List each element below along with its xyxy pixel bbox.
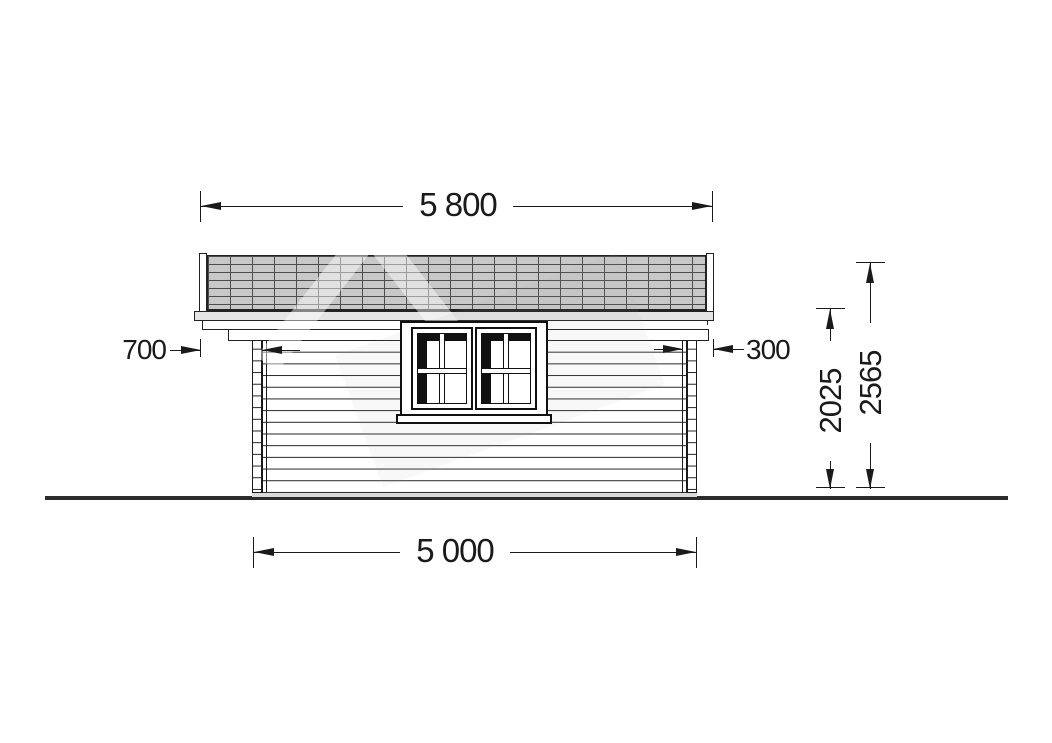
dim-arrow-right-icon — [663, 345, 683, 353]
dim-arrow-left-icon — [254, 548, 274, 556]
window-glazing — [481, 333, 531, 404]
corner-log-ends-right — [687, 331, 697, 493]
extension-tick — [712, 191, 713, 222]
dim-arrow-up-icon — [826, 309, 834, 329]
roof-shingles — [207, 255, 706, 311]
dim-base-width-label: 5 000 — [400, 536, 510, 566]
extension-tick — [856, 487, 885, 488]
dimension-line — [254, 552, 412, 553]
dim-arrow-down-icon — [826, 469, 834, 489]
dim-right-overhang-label: 300 — [746, 337, 812, 363]
dim-arrow-up-icon — [866, 263, 874, 283]
dim-left-overhang-label: 700 — [100, 337, 166, 363]
dim-arrow-down-icon — [866, 469, 874, 489]
dimension-line — [498, 552, 696, 553]
leader-line — [713, 349, 744, 350]
dimension-line — [201, 206, 415, 207]
window-rail-horizontal — [482, 368, 530, 374]
window-glazing — [417, 333, 467, 404]
extension-tick — [200, 339, 201, 357]
window-casement-right — [475, 327, 537, 410]
dim-arrow-left-icon — [262, 346, 282, 354]
extension-tick — [816, 487, 845, 488]
dim-arrow-right-icon — [676, 548, 696, 556]
dim-ridge-height-label: 2565 — [856, 323, 884, 443]
window-sill — [396, 414, 552, 424]
dim-arrow-right-icon — [181, 346, 201, 354]
window-rail-horizontal — [418, 368, 466, 374]
dim-eave-height-label: 2025 — [816, 341, 844, 461]
foundation-strip — [252, 493, 697, 497]
window-casement-left — [411, 327, 473, 410]
wall-corner-line-right — [682, 341, 683, 493]
extension-tick — [696, 537, 697, 568]
corner-log-ends-left — [252, 331, 262, 493]
dim-arrow-right-icon — [692, 202, 712, 210]
barge-board-right — [706, 253, 714, 312]
wall-corner-line-left — [266, 341, 267, 493]
fascia-board — [194, 311, 714, 321]
dim-arrow-left-icon — [201, 202, 221, 210]
barge-board-left — [199, 253, 207, 312]
dim-roof-width-label: 5 800 — [403, 190, 513, 220]
dimension-line — [500, 206, 712, 207]
elevation-drawing: 5 800 5 000 700 300 2025 — [0, 0, 1052, 743]
